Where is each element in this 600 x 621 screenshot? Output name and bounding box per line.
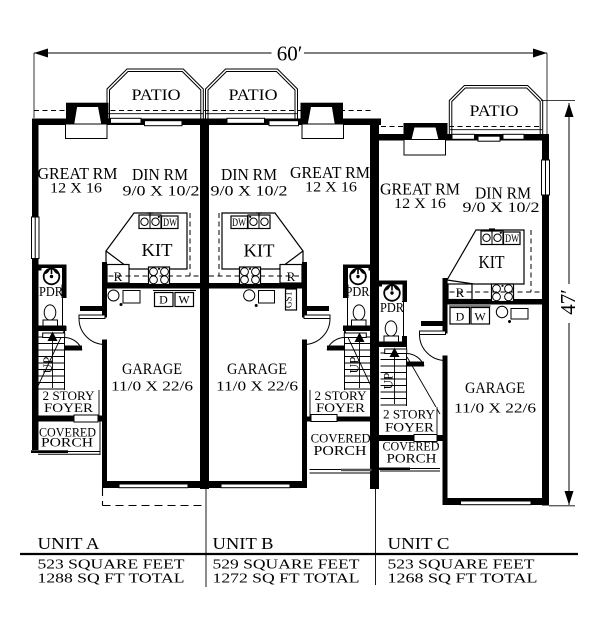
svg-text:R: R [287, 269, 296, 284]
svg-text:11/0 X 22/6: 11/0 X 22/6 [111, 380, 193, 395]
svg-text:9/0 X 10/2: 9/0 X 10/2 [123, 184, 200, 200]
svg-text:11/0 X 22/6: 11/0 X 22/6 [216, 380, 298, 395]
svg-text:523 SQUARE FEET: 523 SQUARE FEET [388, 557, 535, 572]
svg-text:UP: UP [347, 357, 362, 374]
svg-text:UP: UP [381, 373, 396, 390]
svg-text:9/0 X 10/2: 9/0 X 10/2 [463, 200, 540, 216]
svg-text:UP: UP [40, 357, 55, 374]
svg-text:PATIO: PATIO [229, 87, 278, 104]
svg-text:W: W [178, 293, 190, 307]
svg-text:FOYER: FOYER [385, 421, 435, 435]
svg-text:GARAGE: GARAGE [122, 361, 182, 378]
svg-text:KIT: KIT [142, 240, 173, 260]
svg-text:1288 SQ FT TOTAL: 1288 SQ FT TOTAL [38, 571, 185, 586]
svg-text:UNIT B: UNIT B [213, 534, 274, 553]
svg-text:DIN RM: DIN RM [221, 165, 277, 184]
svg-text:FOYER: FOYER [44, 401, 94, 415]
svg-text:11/0 X 22/6: 11/0 X 22/6 [454, 402, 536, 417]
svg-text:KIT: KIT [244, 241, 275, 261]
svg-text:FOYER: FOYER [316, 401, 366, 415]
svg-text:PORCH: PORCH [387, 452, 437, 466]
svg-text:PATIO: PATIO [470, 103, 519, 120]
svg-text:523 SQUARE FEET: 523 SQUARE FEET [38, 557, 185, 572]
svg-text:DW: DW [163, 215, 177, 229]
svg-text:R: R [114, 269, 123, 284]
svg-text:1272 SQ FT TOTAL: 1272 SQ FT TOTAL [213, 571, 360, 586]
svg-text:12 X 16: 12 X 16 [305, 180, 358, 196]
svg-text:12 X 16: 12 X 16 [394, 196, 447, 212]
svg-text:R: R [456, 285, 465, 300]
svg-text:GARAGE: GARAGE [227, 361, 287, 378]
svg-text:9/0 X 10/2: 9/0 X 10/2 [211, 184, 288, 200]
svg-text:KIT: KIT [479, 252, 505, 272]
svg-text:DW: DW [505, 231, 519, 245]
svg-text:GARAGE: GARAGE [465, 380, 525, 397]
svg-text:PDR: PDR [380, 301, 405, 316]
svg-text:PORCH: PORCH [314, 443, 367, 458]
svg-text:DW: DW [232, 215, 246, 229]
svg-text:1268 SQ FT TOTAL: 1268 SQ FT TOTAL [388, 571, 538, 586]
svg-text:PDR: PDR [346, 285, 371, 300]
svg-text:GST: GST [284, 291, 294, 309]
svg-text:PDR: PDR [39, 285, 64, 300]
svg-text:12 X 16: 12 X 16 [50, 181, 103, 197]
svg-text:D: D [456, 310, 465, 324]
svg-text:W: W [474, 310, 486, 324]
svg-text:529 SQUARE FEET: 529 SQUARE FEET [213, 557, 360, 572]
svg-text:UNIT C: UNIT C [388, 534, 450, 553]
svg-text:2 STORY: 2 STORY [383, 408, 435, 422]
svg-text:PATIO: PATIO [132, 87, 181, 104]
svg-text:PORCH: PORCH [41, 436, 93, 450]
svg-text:DIN RM: DIN RM [132, 165, 188, 184]
svg-text:60′: 60′ [277, 42, 303, 66]
svg-text:47′: 47′ [556, 289, 580, 315]
svg-text:D: D [159, 293, 168, 307]
svg-text:UNIT A: UNIT A [38, 534, 100, 553]
